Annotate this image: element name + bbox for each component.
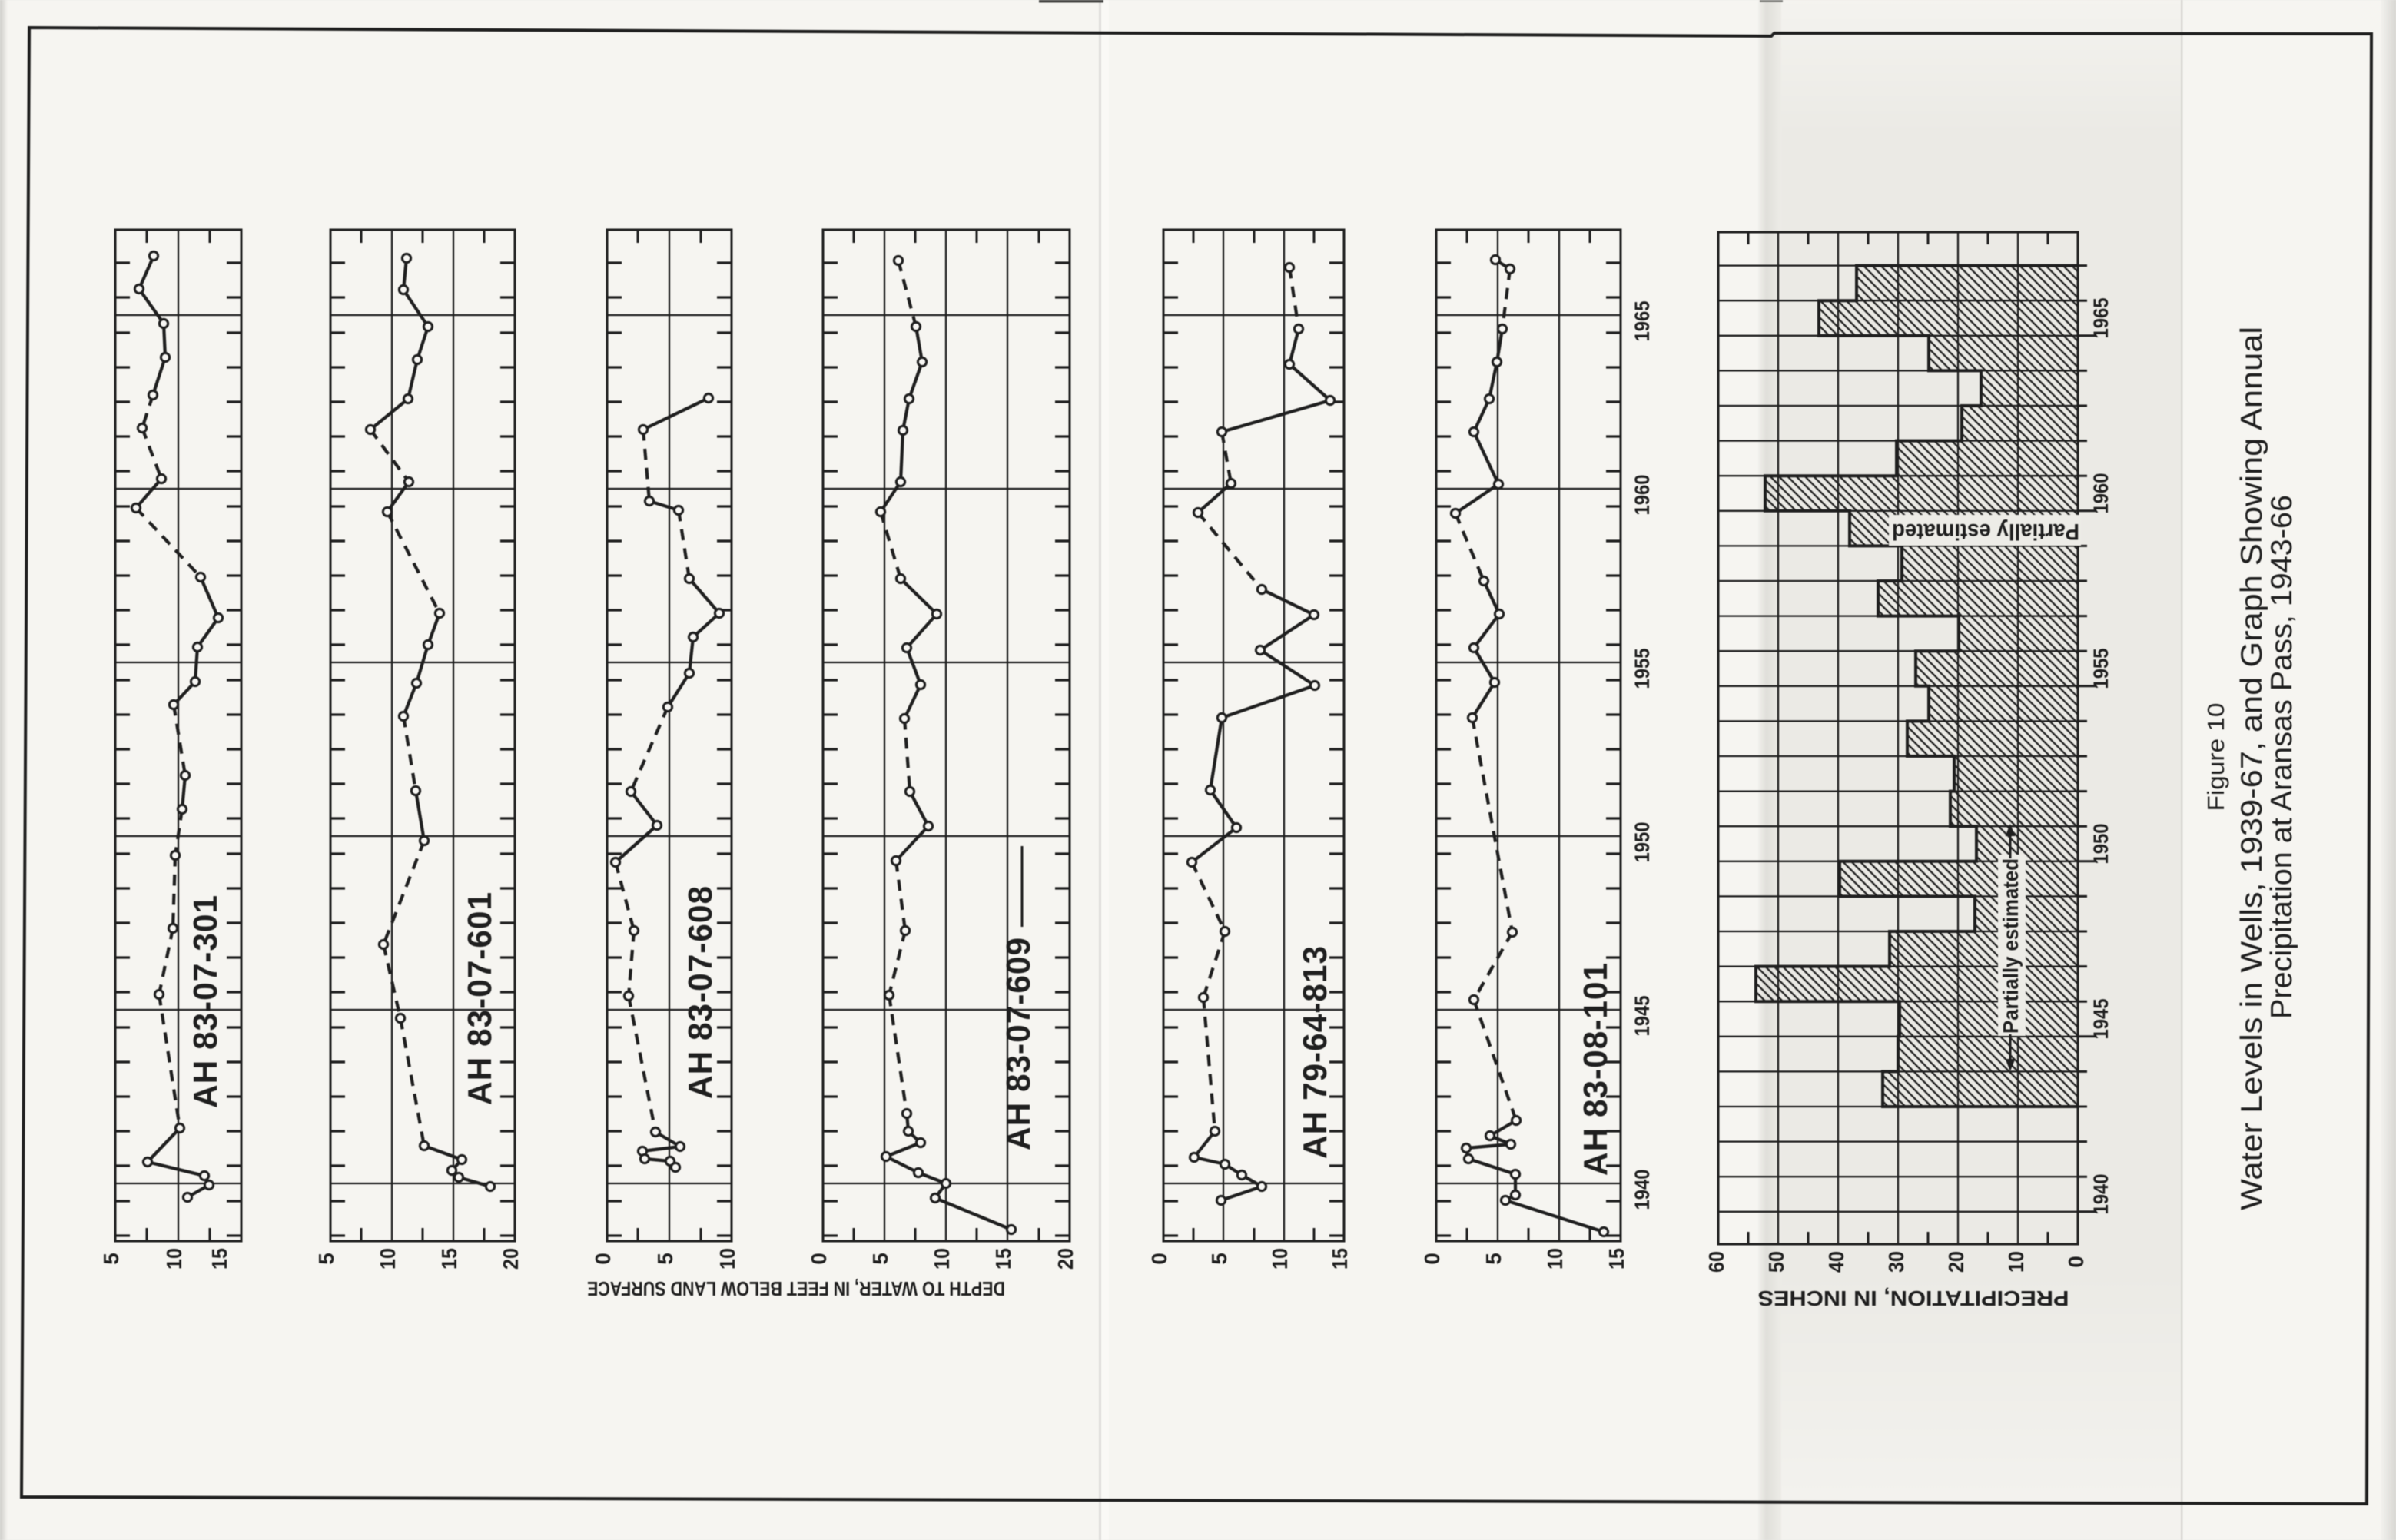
svg-text:10: 10	[930, 1248, 954, 1270]
svg-text:10: 10	[2004, 1251, 2028, 1273]
svg-text:1945: 1945	[1631, 996, 1654, 1037]
svg-text:5: 5	[314, 1253, 338, 1265]
svg-text:AH 83-07-301: AH 83-07-301	[187, 894, 224, 1108]
svg-text:1950: 1950	[1631, 822, 1654, 863]
svg-text:Water Levels in Wells, 1939-67: Water Levels in Wells, 1939-67, and Grap…	[2235, 327, 2268, 1210]
svg-text:0: 0	[591, 1253, 615, 1265]
svg-text:50: 50	[1764, 1251, 1788, 1273]
svg-text:AH 83-08-101: AH 83-08-101	[1577, 962, 1614, 1176]
svg-text:1955: 1955	[2089, 649, 2112, 689]
svg-text:60: 60	[1704, 1251, 1728, 1273]
svg-text:15: 15	[1328, 1248, 1352, 1270]
svg-text:0: 0	[2064, 1256, 2088, 1268]
svg-text:PRECIPITATION, IN INCHES: PRECIPITATION, IN INCHES	[1758, 1286, 2069, 1310]
svg-text:5: 5	[868, 1253, 892, 1265]
svg-text:5: 5	[1207, 1253, 1231, 1265]
svg-text:10: 10	[1268, 1248, 1292, 1270]
svg-text:10: 10	[376, 1248, 400, 1270]
svg-text:5: 5	[99, 1253, 123, 1265]
svg-text:AH 79-64-813: AH 79-64-813	[1296, 945, 1334, 1159]
svg-text:1965: 1965	[2089, 298, 2112, 339]
svg-text:AH 83-07-609: AH 83-07-609	[1000, 937, 1037, 1150]
svg-text:Precipitation at Aransas Pass,: Precipitation at Aransas Pass, 1943-66	[2265, 495, 2298, 1019]
svg-text:30: 30	[1884, 1251, 1908, 1273]
svg-text:1940: 1940	[2089, 1174, 2112, 1215]
svg-text:20: 20	[1054, 1248, 1077, 1270]
svg-text:40: 40	[1824, 1251, 1848, 1273]
svg-text:1960: 1960	[1631, 475, 1654, 516]
svg-text:0: 0	[1420, 1253, 1444, 1265]
svg-text:1955: 1955	[1631, 649, 1654, 689]
svg-text:DEPTH TO WATER, IN FEET BE: DEPTH TO WATER, IN FEET BELOW LAND SURFA…	[587, 1277, 1005, 1300]
svg-text:1940: 1940	[1631, 1170, 1654, 1210]
svg-text:5: 5	[653, 1253, 677, 1265]
svg-text:1965: 1965	[1631, 301, 1654, 342]
svg-text:0: 0	[1147, 1253, 1171, 1265]
svg-text:AH 83-07-608: AH 83-07-608	[682, 885, 719, 1099]
svg-text:10: 10	[162, 1248, 186, 1270]
svg-text:Partially estimated: Partially estimated	[1999, 858, 2023, 1034]
svg-text:15: 15	[207, 1248, 231, 1270]
svg-text:15: 15	[991, 1248, 1015, 1270]
svg-text:15: 15	[1605, 1248, 1628, 1270]
svg-text:1960: 1960	[2089, 473, 2112, 514]
svg-text:5: 5	[1482, 1253, 1505, 1265]
svg-text:20: 20	[499, 1248, 523, 1270]
svg-text:15: 15	[437, 1248, 461, 1270]
svg-text:Partially estimated: Partially estimated	[1892, 519, 2079, 544]
svg-text:1950: 1950	[2089, 824, 2112, 865]
svg-text:10: 10	[1543, 1248, 1567, 1270]
svg-text:1945: 1945	[2089, 999, 2112, 1040]
svg-text:20: 20	[1944, 1251, 1968, 1273]
svg-text:0: 0	[807, 1253, 831, 1265]
svg-text:Figure 10: Figure 10	[2202, 703, 2229, 811]
svg-text:AH 83-07-601: AH 83-07-601	[461, 891, 499, 1105]
svg-text:10: 10	[715, 1248, 739, 1270]
